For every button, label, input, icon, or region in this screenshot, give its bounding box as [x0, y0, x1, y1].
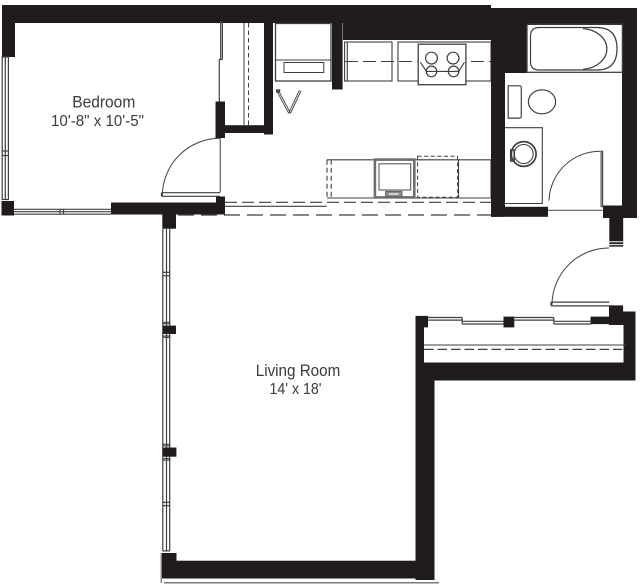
svg-text:Bedroom: Bedroom	[72, 93, 135, 112]
svg-text:10'-8" x 10'-5": 10'-8" x 10'-5"	[51, 113, 144, 130]
svg-text:Living Room: Living Room	[256, 361, 341, 380]
svg-text:14' x 18': 14' x 18'	[270, 381, 322, 398]
